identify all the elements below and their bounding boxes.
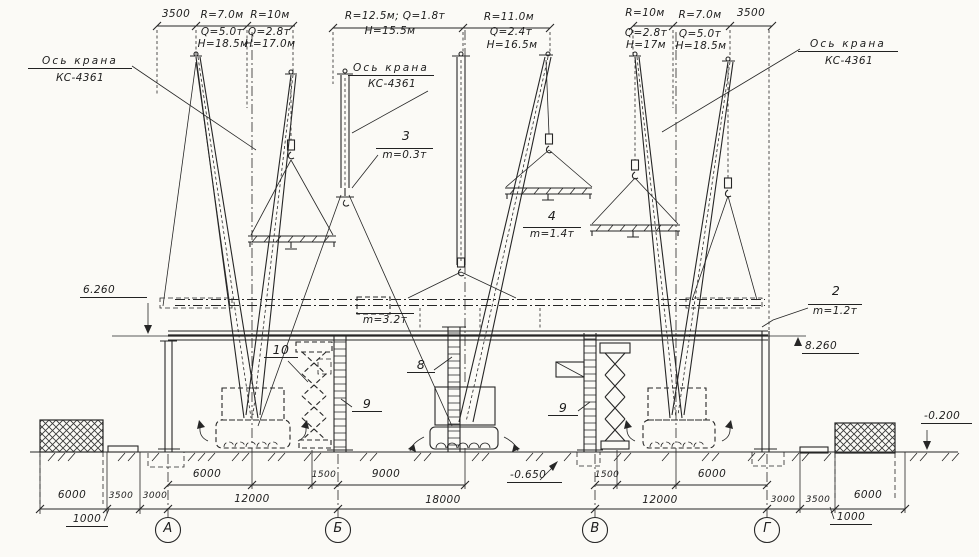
dim-inner-9000: 9000 bbox=[362, 469, 410, 480]
dim-inner-1500-right: 1500 bbox=[588, 471, 626, 480]
leader-lines bbox=[132, 49, 808, 411]
crane-pos3-height: Н=15.5м bbox=[355, 26, 425, 37]
dim-inner-1500-left: 1500 bbox=[305, 471, 343, 480]
scissor-lift-left bbox=[296, 342, 332, 448]
erection-scheme-drawing: 3500 R=7.0м Q=5.0т Н=18.5м R=10м Q=2.8т … bbox=[0, 0, 979, 557]
crawler-base-middle bbox=[408, 387, 520, 452]
crane-pos6-load: Q=5.0т bbox=[672, 29, 728, 40]
elevation-pit: -0.650 bbox=[507, 470, 562, 483]
axis-bubble-a: А bbox=[156, 522, 180, 536]
item2-number: 2 bbox=[820, 284, 852, 297]
crane-pos2-radius: R=10м bbox=[242, 10, 298, 21]
crane-middle bbox=[258, 30, 592, 452]
dim-left-outer-3500: 3500 bbox=[103, 492, 139, 501]
traverse-beam-item4 bbox=[505, 188, 592, 200]
crane-pos5-radius: R=10м bbox=[618, 8, 672, 19]
crane-axis-label-middle-line1: Ось крана bbox=[348, 63, 434, 76]
crane-pos5-height: Н=17м bbox=[620, 40, 672, 51]
dim-right-outer-3500: 3500 bbox=[799, 496, 837, 505]
item4-number: 4 bbox=[536, 209, 568, 222]
dim-offset-1000-right: 1000 bbox=[830, 512, 872, 525]
dim-right-outer-6000: 6000 bbox=[844, 490, 892, 501]
elevation-ground-right: -0.200 bbox=[921, 411, 972, 424]
crane-pos4-height: Н=16.5м bbox=[479, 40, 545, 51]
axis-bubble-v: В bbox=[583, 522, 607, 536]
dim-offset-1000-left: 1000 bbox=[66, 514, 108, 527]
crane-axis-label-middle-line2: КС-4361 bbox=[352, 79, 432, 90]
crane-axis-label-left-line1: Ось крана bbox=[28, 56, 132, 69]
axis-bubble-g: Г bbox=[755, 522, 779, 536]
item9-right-number: 9 bbox=[548, 401, 578, 416]
traverse-beam-right bbox=[590, 225, 680, 237]
crane-left bbox=[163, 32, 336, 448]
elevation-beam-left: 6.260 bbox=[80, 285, 147, 298]
bottom-dimension-lines bbox=[36, 448, 909, 521]
dim-inner-6000-right: 6000 bbox=[688, 469, 736, 480]
item2-mass: m=1.2т bbox=[808, 304, 862, 317]
crane-pos5-load: Q=2.8т bbox=[618, 28, 674, 39]
axis-bubble-b: Б bbox=[326, 522, 350, 536]
dim-3500-right: 3500 bbox=[726, 8, 776, 19]
crane-axis-label-left-line2: КС-4361 bbox=[36, 73, 124, 84]
dim-left-outer-6000: 6000 bbox=[48, 490, 96, 501]
truss-mass: m=3.2т bbox=[356, 313, 414, 326]
item4-mass: m=1.4т bbox=[523, 227, 581, 240]
dim-span-18000: 18000 bbox=[415, 495, 471, 506]
item8-number: 8 bbox=[407, 358, 435, 373]
dim-span-12000-left: 12000 bbox=[225, 494, 279, 505]
crawler-base-left bbox=[197, 388, 309, 448]
crane-pos6-radius: R=7.0м bbox=[671, 10, 729, 21]
item10-number: 10 bbox=[264, 343, 298, 358]
crawler-base-right bbox=[624, 388, 733, 448]
dim-span-12000-right: 12000 bbox=[632, 495, 688, 506]
traverse-beam-left bbox=[248, 236, 336, 249]
item9-left-number: 9 bbox=[352, 397, 382, 412]
crane-axis-label-right-line1: Ось крана bbox=[798, 39, 898, 52]
crane-pos2-load: Q=2.8т bbox=[241, 27, 297, 38]
scissor-lift-right bbox=[600, 343, 630, 449]
crane-pos2-height: Н=17.0м bbox=[238, 39, 302, 50]
elevation-beam-right: 8.260 bbox=[802, 341, 859, 354]
crane-axis-label-right-line2: КС-4361 bbox=[806, 56, 892, 67]
item3-mass: m=0.3т bbox=[376, 148, 433, 161]
crane-pos4-load: Q=2.4т bbox=[482, 27, 540, 38]
crane-pos6-height: Н=18.5м bbox=[668, 41, 734, 52]
drawing-linework bbox=[0, 0, 979, 557]
crane-pos3-radius-load: R=12.5м; Q=1.8т bbox=[334, 11, 456, 22]
dim-right-outer-3000: 3000 bbox=[764, 496, 802, 505]
dim-inner-6000-left: 6000 bbox=[180, 469, 234, 480]
dim-left-outer-3000: 3000 bbox=[137, 492, 173, 501]
crane-pos4-radius: R=11.0м bbox=[477, 12, 541, 23]
item3-number: 3 bbox=[390, 129, 422, 142]
